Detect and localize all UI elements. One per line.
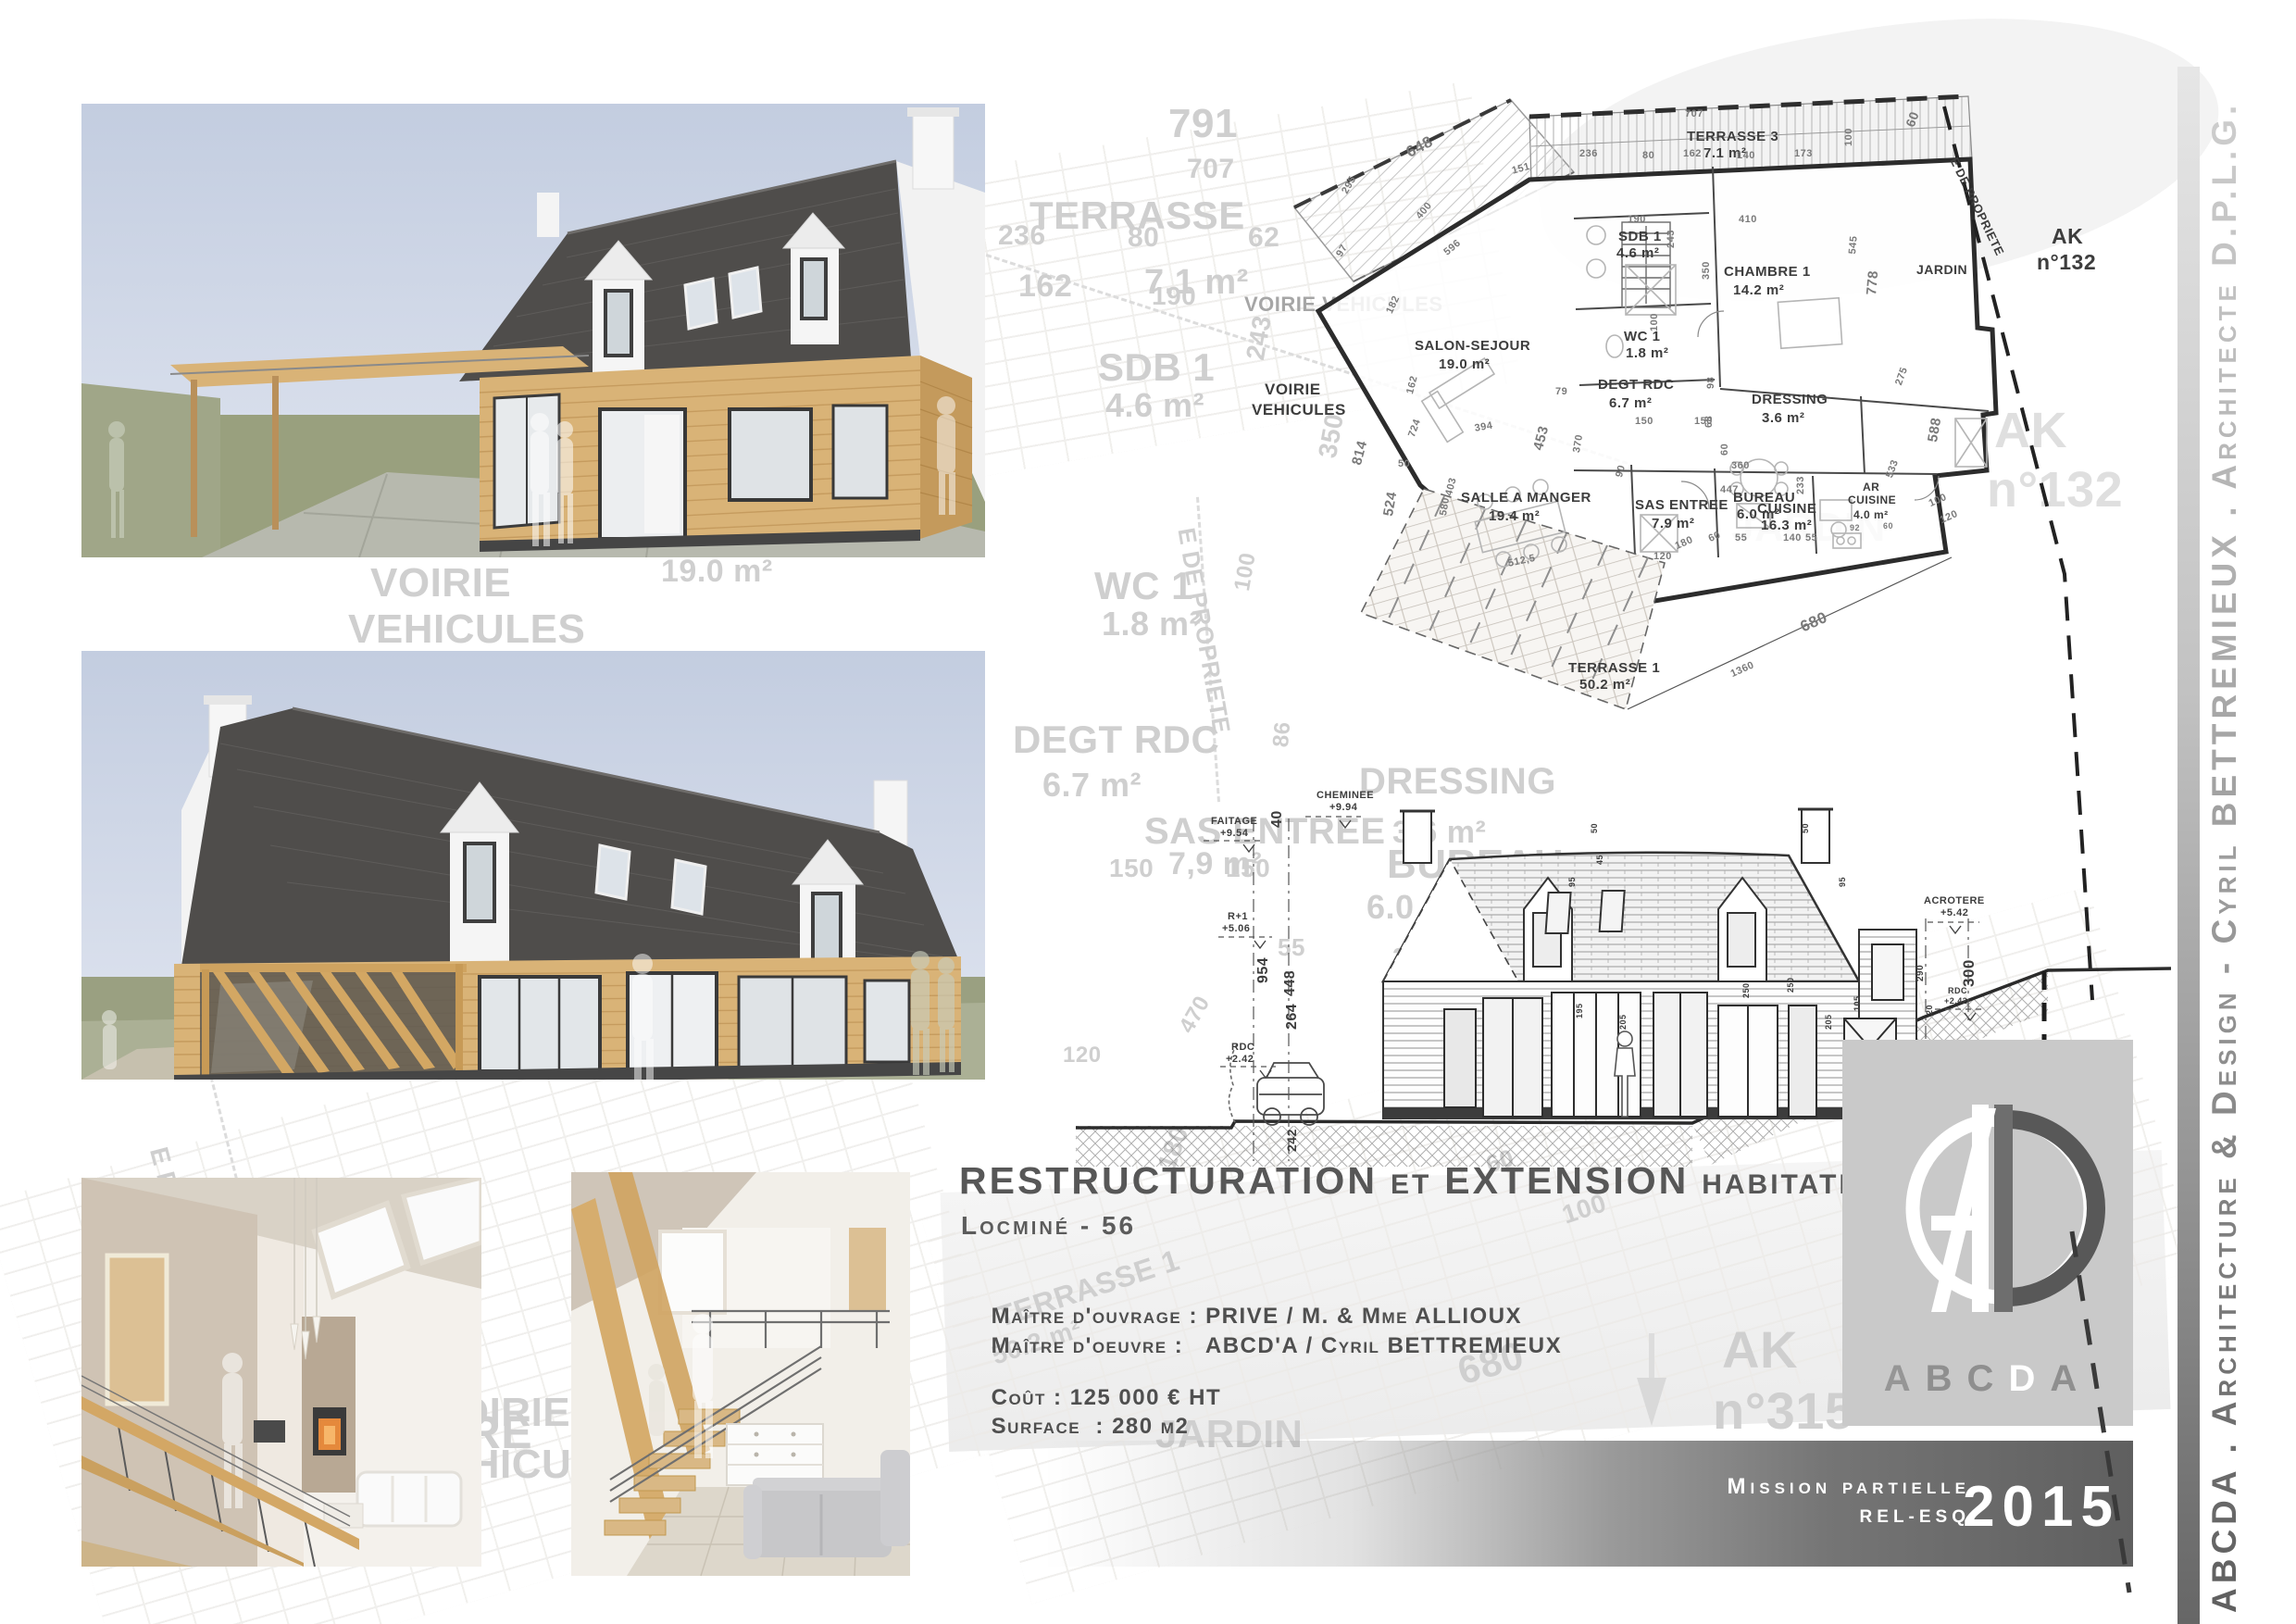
faded-plan-label: n°132 (1987, 465, 2123, 515)
elevation-label: +5.42 (1940, 908, 1968, 918)
faded-plan-label: 3.6 m² (1392, 817, 1486, 848)
logo-letter: D (2008, 1358, 2050, 1399)
plan-dim-label: 100 (1650, 313, 1660, 331)
logo-letter: B (1926, 1358, 1967, 1399)
plan-room-label: 92 (1850, 524, 1860, 532)
plan-room-label: TERRASSE 1 (1568, 661, 1660, 675)
plan-dim-label: 140 (1783, 533, 1802, 543)
plan-room-label: 1.8 m² (1626, 346, 1668, 360)
elevation-label: ACROTERE (1924, 896, 1985, 906)
elevation-label: 50 (1802, 823, 1810, 833)
plan-dim-label: 150 (1635, 417, 1653, 427)
faded-plan-label: 6.0 m (1366, 891, 1454, 924)
mission-text: Mission partielle REL-ESQ (1728, 1474, 1970, 1528)
sidebar-vertical-text: ABCDA . Architecture & Design - Cyril BE… (2205, 61, 2277, 1613)
plan-dim-label: 55 (1805, 533, 1817, 543)
elevation-label: 195 (1576, 1003, 1584, 1018)
render-interior-mezzanine (81, 1178, 481, 1567)
plan-room-label: 3.6 m² (1762, 411, 1804, 425)
plan-room-label: 19.4 m² (1489, 509, 1540, 523)
faded-plan-label: 100 (1231, 551, 1260, 593)
plan-dim-label: 588 (1926, 417, 1943, 443)
faded-plan-label: DEGT RDC (1013, 720, 1219, 759)
plan-room-label: 4.0 m² (1853, 509, 1889, 520)
title-word: et (1391, 1169, 1431, 1200)
plan-dim-label: 814 (1350, 439, 1369, 467)
plan-dim-label: 150 (1694, 417, 1713, 427)
elevation-label: R+1 (1228, 912, 1248, 922)
elevation-label: +9.94 (1329, 803, 1357, 813)
plan-room-label: 6.7 m² (1609, 396, 1652, 410)
plan-dim-label: 60 (1720, 443, 1730, 456)
title-word: Restructuration (959, 1159, 1378, 1202)
presentation-sheet: 791707TERRASSE1627.1 m²2368062VOIRIE VEH… (0, 0, 2296, 1624)
faded-plan-label: 350 (1315, 412, 1348, 460)
elevation-label: 45 (1596, 855, 1604, 865)
plan-dim-label: 524 (1381, 491, 1399, 518)
elevation-label: 50 (1591, 823, 1599, 833)
elevation-label: CHEMINEE (1316, 791, 1374, 801)
faded-plan-label: 86 (1270, 720, 1294, 748)
project-location: Locminé - 56 (961, 1211, 1136, 1241)
mission-line2: REL-ESQ (1728, 1507, 1970, 1528)
plan-room-label: SALLE A MANGER (1461, 491, 1591, 505)
background-wash (1519, 0, 2239, 344)
mission-line1: Mission partielle (1728, 1474, 1970, 1500)
plan-dim-label: 98 (1706, 377, 1716, 389)
logo-panel: ABCDA (1842, 1040, 2133, 1426)
elevation-label: +9.54 (1220, 829, 1248, 839)
faded-plan-label: VEHICULES (348, 609, 585, 650)
plan-dim-label: 90 (1615, 464, 1628, 479)
faded-plan-label: 470 (1176, 993, 1215, 1037)
plan-dim-label: 55 (1735, 533, 1747, 543)
plan-room-label: 6.0 m² (1737, 507, 1779, 521)
render-exterior-carport (81, 104, 985, 557)
plan-dim-label: 50 (1398, 459, 1410, 469)
faded-plan-label: 7,9 m² (1168, 848, 1262, 880)
plan-room-label: n°132 (2037, 252, 2096, 273)
background-dashed-line (1196, 497, 1220, 802)
plan-room-label: 60 (1883, 522, 1893, 531)
elevation-label: 95 (1568, 877, 1577, 887)
surface-label: Surface : (992, 1414, 1112, 1439)
faded-plan-label: DRESSING (1359, 763, 1556, 800)
plan-dim-label: 275 (1894, 366, 1910, 386)
faded-plan-label: 55 (1278, 935, 1305, 959)
architect-value: ABCD'A / Cyril BETTREMIEUX (1205, 1333, 1562, 1358)
plan-dim-label: 233 (1796, 476, 1806, 494)
plan-dim-label: 120 (1939, 509, 1960, 526)
elevation-label: 954 (1256, 957, 1271, 983)
plan-dim-label: 360 (1731, 461, 1750, 471)
plan-dim-label: 1360 (1729, 660, 1756, 680)
title-word: Extension (1444, 1159, 1689, 1202)
faded-plan-label: VOIRIE (370, 563, 511, 604)
plan-room-label: AR (1863, 481, 1879, 493)
plan-room-label: 16.3 m² (1761, 518, 1812, 532)
logo-letter: C (1967, 1358, 2009, 1399)
plan-dim-label: 680 (1798, 609, 1829, 635)
elevation-label: 95 (1839, 877, 1847, 887)
plan-dim-label: 180 (1674, 535, 1695, 552)
year-badge: 2015 (1963, 1474, 2120, 1540)
elevation-label: FAITAGE (1211, 817, 1257, 827)
plan-dim-label: 447 (1720, 485, 1739, 495)
faded-plan-label: WC 1 (1094, 567, 1193, 606)
plan-dim-label: 394 (1474, 421, 1493, 434)
architect-label: Maître d'oeuvre : (992, 1333, 1205, 1358)
logo-wordmark: ABCDA (1842, 1358, 2133, 1400)
faded-plan-label: 250 (1392, 944, 1437, 970)
plan-dim-label: 151 (1511, 162, 1531, 177)
faded-plan-label: 120 (1063, 1044, 1102, 1067)
elevation-label: +2.42 (1226, 1055, 1254, 1065)
logo-letter: A (1884, 1358, 1926, 1399)
plan-dim-label: 60 (1707, 531, 1723, 544)
plan-room-label: 7.9 m² (1652, 517, 1694, 531)
faded-plan-label: E DE PROPRIETE (1174, 526, 1234, 735)
plan-room-label: CUISINE (1848, 494, 1896, 506)
plan-dim-label: 512,5 (1507, 554, 1537, 569)
faded-plan-label: 150 (1109, 856, 1154, 881)
faded-plan-label: JARDIN (1731, 507, 1886, 548)
render-exterior-pergola (81, 651, 985, 1080)
plan-dim-label: 120 (1653, 552, 1672, 562)
plan-dim-label: 100 (1928, 493, 1949, 509)
logo-letter: A (2050, 1358, 2091, 1399)
elevation-label: +5.06 (1222, 924, 1250, 934)
plan-room-label: CUISINE (1757, 502, 1816, 516)
plan-dim-label: 403 (1444, 477, 1459, 497)
plan-room-label: SAS ENTREE (1635, 498, 1728, 512)
elevation-label: RDC (1231, 1043, 1254, 1053)
render-interior-living (571, 1172, 910, 1576)
surface-value: 280 m2 (1112, 1414, 1189, 1439)
sidebar-gradient-bar (2177, 67, 2200, 1624)
faded-plan-label: SAS ENTREE (1144, 813, 1386, 850)
elevation-label: 448 (1283, 970, 1298, 996)
elevation-label: 40 (1270, 810, 1285, 828)
mission-bar: Mission partielle REL-ESQ 2015 (1044, 1441, 2133, 1567)
plan-room-label: WC 1 (1624, 330, 1661, 344)
plan-room-label: DRESSING (1752, 393, 1828, 406)
faded-plan-label: 6.7 m² (1042, 768, 1142, 802)
plan-dim-label: 79 (1555, 387, 1567, 397)
elevation-label: 264 (1285, 1004, 1300, 1030)
plan-dim-label: 533 (1885, 458, 1901, 479)
plan-dim-label: 580 (1439, 496, 1452, 516)
plan-room-label: BUREAU (1733, 491, 1795, 505)
plan-dim-label: 724 (1407, 418, 1423, 438)
plan-room-label: DEGT RDC (1598, 378, 1674, 392)
faded-plan-label: BUREAU (1387, 844, 1564, 885)
faded-plan-label: 1.8 m² (1102, 607, 1201, 641)
faded-plan-label: 150 (1226, 856, 1270, 881)
faded-plan-label: 19.0 m² (661, 556, 773, 587)
plan-dim-label: 68 (1704, 416, 1715, 428)
faded-plan-label: AK (1994, 406, 2067, 456)
plan-room-label: 50.2 m² (1579, 678, 1630, 692)
